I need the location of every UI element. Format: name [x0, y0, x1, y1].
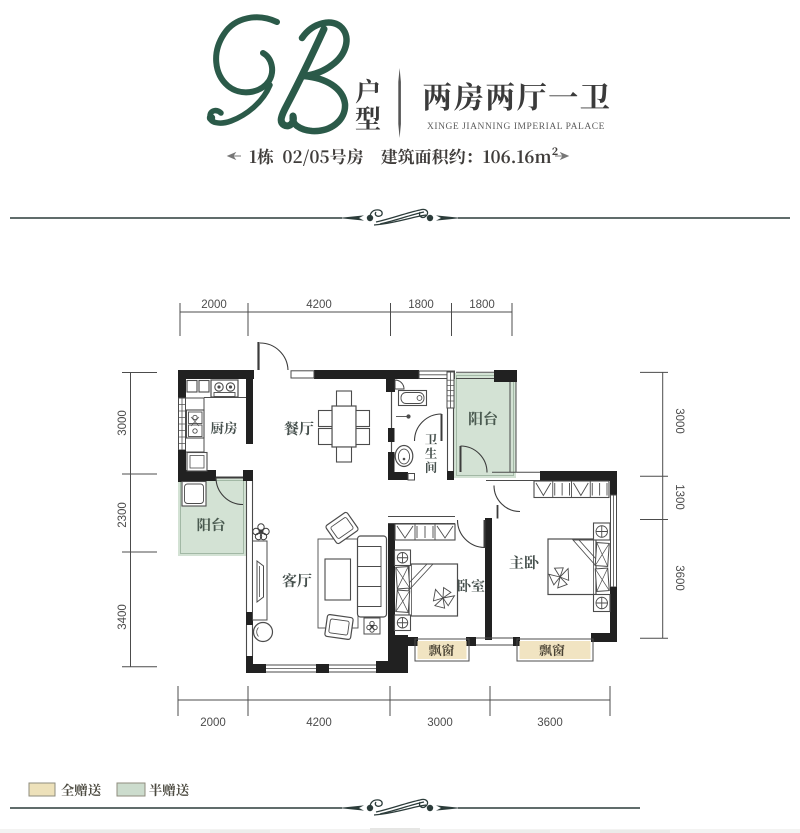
svg-text:1300: 1300	[673, 484, 685, 510]
svg-text:1800: 1800	[469, 299, 495, 311]
svg-text:4200: 4200	[306, 717, 332, 729]
svg-text:3000: 3000	[117, 410, 129, 436]
svg-text:2000: 2000	[201, 299, 227, 311]
svg-text:4200: 4200	[306, 299, 332, 311]
svg-text:3600: 3600	[673, 565, 685, 591]
svg-text:2300: 2300	[117, 502, 129, 528]
svg-text:1800: 1800	[408, 299, 434, 311]
svg-text:3600: 3600	[537, 717, 563, 729]
svg-text:3400: 3400	[117, 604, 129, 630]
svg-text:3000: 3000	[673, 408, 685, 434]
svg-text:XINGE JIANNING IMPERIAL PALACE: XINGE JIANNING IMPERIAL PALACE	[427, 122, 605, 132]
svg-text:3000: 3000	[427, 717, 453, 729]
svg-text:2000: 2000	[200, 717, 226, 729]
